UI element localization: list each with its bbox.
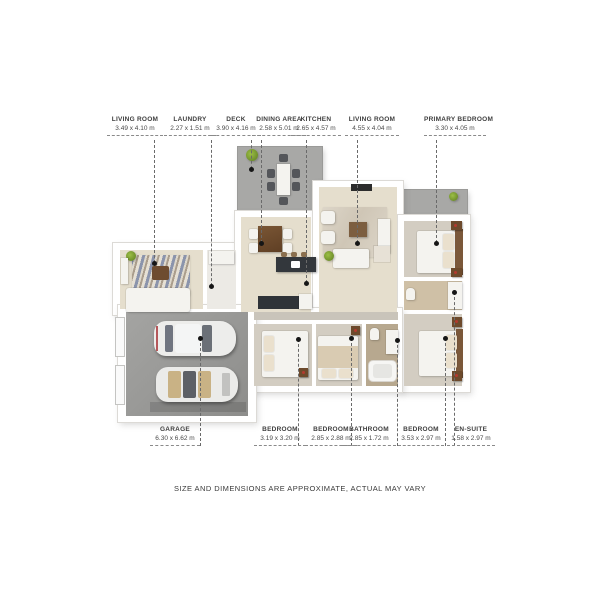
leader-line: [445, 338, 446, 446]
pillow: [264, 336, 274, 352]
room-name: BEDROOM: [254, 426, 306, 433]
leader-line: [454, 292, 455, 446]
room-dims: 4.55 x 4.04 m: [345, 125, 399, 132]
sofa: [126, 288, 190, 312]
dining-chair: [249, 229, 258, 239]
leader-line: [154, 140, 155, 263]
bar-stool: [281, 252, 287, 257]
shelf-unit: [374, 246, 390, 262]
nightstand: [451, 221, 462, 230]
floorplan-scene: LIVING ROOM 3.49 x 4.10 m LAUNDRY 2.27 x…: [0, 0, 600, 600]
car-trunk-vent: [222, 373, 230, 396]
room-label-ensuite: EN-SUITE 1.58 x 2.97 m: [447, 426, 495, 446]
leader-dot: [152, 261, 157, 266]
bathtub-basin: [373, 364, 392, 378]
toilet: [406, 288, 415, 300]
deck-chair: [292, 169, 300, 178]
room-name: KITCHEN: [291, 116, 341, 123]
tv: [351, 184, 372, 191]
leader-line: [357, 140, 358, 243]
bar-stool: [291, 252, 297, 257]
car-taillight: [156, 326, 158, 351]
room-dims: 2.27 x 1.51 m: [164, 125, 216, 132]
room-dims: 3.53 x 2.97 m: [398, 435, 444, 442]
leader-dot: [355, 241, 360, 246]
room-dims: 6.30 x 6.62 m: [150, 435, 200, 442]
leader-dot: [259, 241, 264, 246]
room-label-bedroom-1: BEDROOM 3.19 x 3.20 m: [254, 426, 306, 446]
plant-icon: [449, 192, 458, 201]
car-console: [183, 371, 196, 398]
leader-dot: [434, 241, 439, 246]
pillow: [322, 369, 336, 378]
leader-dot: [304, 281, 309, 286]
room-label-laundry: LAUNDRY 2.27 x 1.51 m: [164, 116, 216, 136]
room-label-living-room-2: LIVING ROOM 4.55 x 4.04 m: [345, 116, 399, 136]
room-dims: 3.49 x 4.10 m: [107, 125, 163, 132]
leader-line: [251, 140, 252, 169]
vanity: [448, 282, 462, 309]
room-dims: 2.65 x 4.57 m: [291, 125, 341, 132]
blanket: [318, 346, 358, 368]
leader-dot: [209, 284, 214, 289]
room-name: GARAGE: [150, 426, 200, 433]
plant-icon: [324, 251, 334, 261]
deck-chair: [279, 154, 288, 162]
disclaimer-text: SIZE AND DIMENSIONS ARE APPROXIMATE, ACT…: [0, 484, 600, 493]
leader-dot: [452, 290, 457, 295]
car-rear-window: [165, 325, 173, 352]
leader-line: [306, 140, 307, 283]
room-label-bedroom-3: BEDROOM 3.53 x 2.97 m: [398, 426, 444, 446]
room-label-garage: GARAGE 6.30 x 6.62 m: [150, 426, 200, 446]
room-label-kitchen: KITCHEN 2.65 x 4.57 m: [291, 116, 341, 136]
leader-dot: [395, 338, 400, 343]
deck-chair: [267, 182, 275, 191]
hallway-floor: [254, 312, 398, 320]
leader-line: [261, 140, 262, 243]
sofa: [333, 249, 369, 268]
pillow: [264, 355, 274, 371]
room-name: LAUNDRY: [164, 116, 216, 123]
leader-dot: [443, 336, 448, 341]
plant-icon: [246, 149, 258, 161]
car-seats: [168, 371, 181, 398]
leader-dot: [198, 336, 203, 341]
coffee-table: [349, 222, 367, 237]
deck-chair: [292, 182, 300, 191]
car: [154, 321, 236, 356]
deck-chair: [267, 169, 275, 178]
coffee-table: [152, 266, 169, 280]
leader-line: [436, 140, 437, 243]
pillow: [443, 252, 454, 268]
armchair: [321, 231, 335, 244]
leader-dot: [296, 337, 301, 342]
island-sink: [291, 261, 300, 268]
garage-door: [116, 318, 124, 356]
armchair: [321, 211, 335, 224]
washer-dryer: [209, 251, 234, 264]
room-name: LIVING ROOM: [345, 116, 399, 123]
deck-table: [277, 164, 290, 195]
room-label-bathroom: BATHROOM 2.85 x 1.72 m: [342, 426, 396, 446]
room-dims: 2.85 x 1.72 m: [342, 435, 396, 442]
leader-dot: [349, 336, 354, 341]
dining-chair: [249, 243, 258, 253]
room-name: BEDROOM: [398, 426, 444, 433]
kitchen-counter: [258, 296, 300, 309]
deck-chair: [279, 197, 288, 205]
room-name: BATHROOM: [342, 426, 396, 433]
room-label-living-room-1: LIVING ROOM 3.49 x 4.10 m: [107, 116, 163, 136]
leader-line: [211, 140, 212, 286]
dining-chair: [283, 229, 292, 239]
room-label-primary-bedroom: PRIMARY BEDROOM 3.30 x 4.05 m: [424, 116, 486, 136]
room-dims: 3.19 x 3.20 m: [254, 435, 306, 442]
pillow: [443, 234, 454, 250]
garage-shadow: [150, 402, 246, 412]
nightstand: [351, 326, 360, 335]
nightstand: [299, 368, 308, 377]
toilet: [370, 328, 379, 340]
nightstand: [451, 268, 462, 277]
room-name: EN-SUITE: [447, 426, 495, 433]
tv-unit: [121, 258, 128, 284]
car: [156, 367, 238, 402]
fridge: [299, 294, 312, 309]
room-name: PRIMARY BEDROOM: [424, 116, 486, 123]
room-dims: 1.58 x 2.97 m: [447, 435, 495, 442]
leader-line: [200, 338, 201, 446]
room-name: LIVING ROOM: [107, 116, 163, 123]
room-dims: 3.30 x 4.05 m: [424, 125, 486, 132]
garage-door: [116, 366, 124, 404]
car-windshield: [202, 325, 212, 352]
pillow: [446, 353, 457, 368]
leader-dot: [249, 167, 254, 172]
